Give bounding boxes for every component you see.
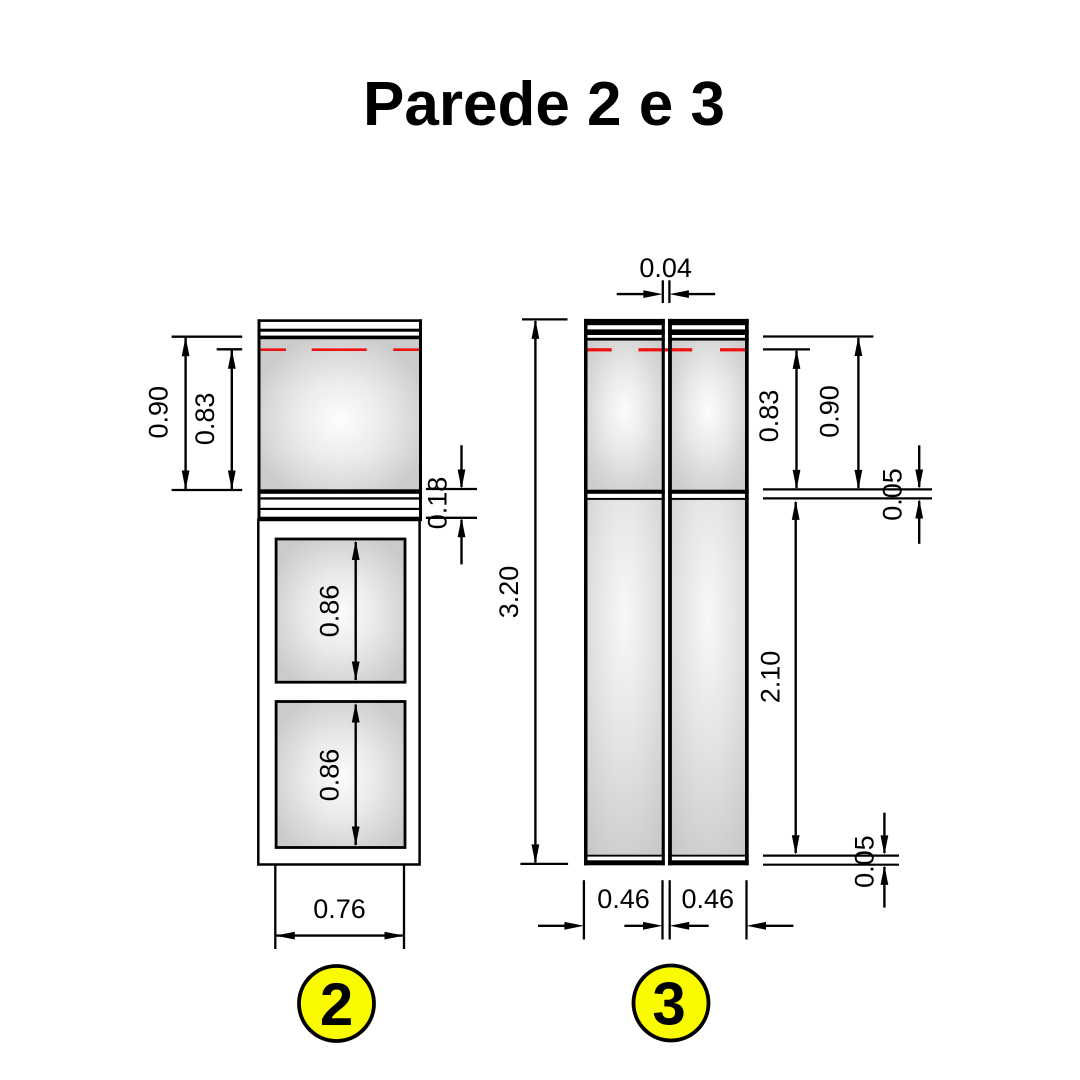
svg-text:0.46: 0.46 xyxy=(682,884,735,914)
svg-text:Parede 2 e 3: Parede 2 e 3 xyxy=(363,70,725,139)
svg-text:0.90: 0.90 xyxy=(143,386,173,439)
svg-text:3: 3 xyxy=(652,971,685,1038)
svg-text:2: 2 xyxy=(320,971,353,1038)
svg-text:3.20: 3.20 xyxy=(494,566,524,619)
svg-text:0.83: 0.83 xyxy=(754,390,784,443)
svg-text:0.46: 0.46 xyxy=(597,884,650,914)
svg-text:0.04: 0.04 xyxy=(639,253,692,283)
svg-text:0.90: 0.90 xyxy=(814,385,844,438)
svg-text:2.10: 2.10 xyxy=(756,651,786,704)
svg-text:0.86: 0.86 xyxy=(315,749,345,802)
svg-text:0.18: 0.18 xyxy=(423,477,453,530)
svg-text:0.86: 0.86 xyxy=(315,585,345,638)
svg-text:0.83: 0.83 xyxy=(190,393,220,446)
svg-text:0.05: 0.05 xyxy=(878,468,908,521)
svg-text:0.76: 0.76 xyxy=(313,894,366,924)
svg-text:0.05: 0.05 xyxy=(849,835,879,888)
